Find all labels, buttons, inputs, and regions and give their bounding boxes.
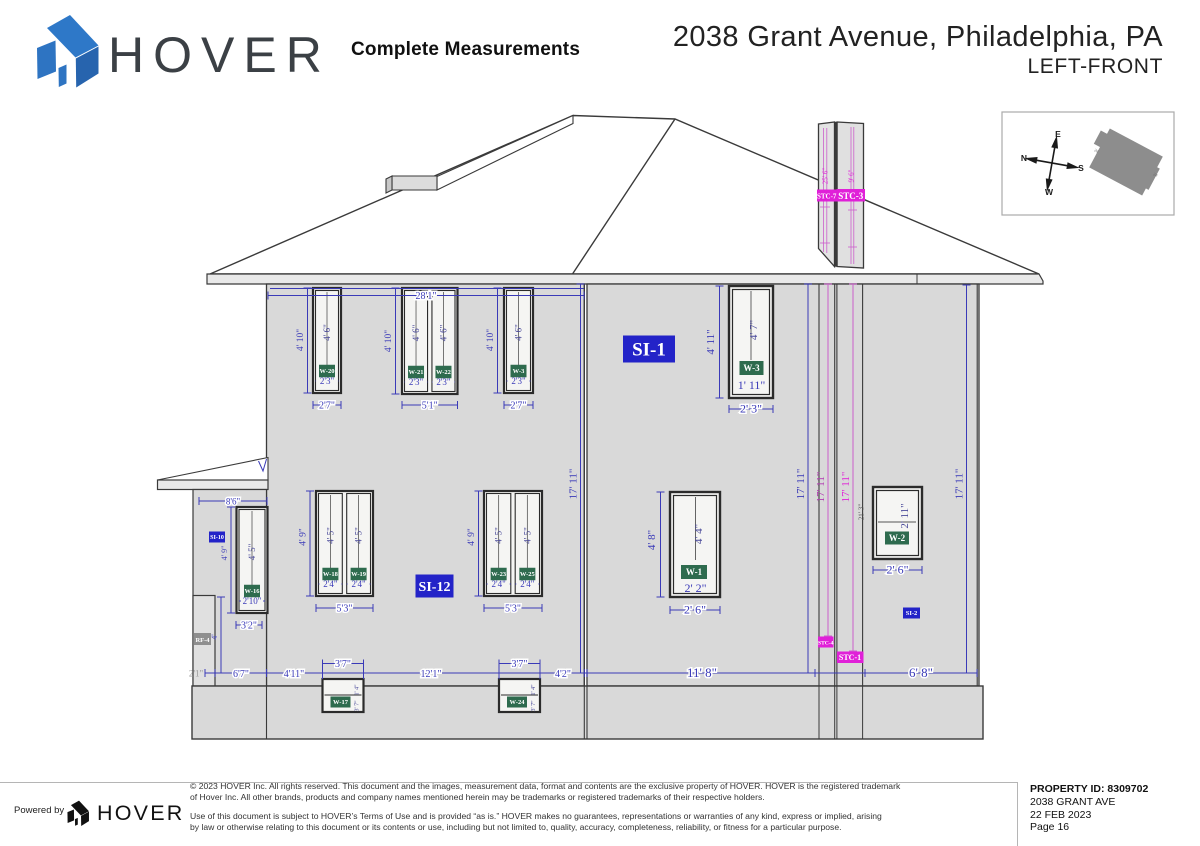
- svg-text:W-23: W-23: [491, 571, 507, 578]
- svg-text:STC-4: STC-4: [818, 641, 834, 647]
- svg-text:3' 7": 3' 7": [355, 700, 361, 712]
- svg-text:W-3: W-3: [743, 363, 760, 373]
- svg-text:4' 5": 4' 5": [354, 527, 364, 544]
- svg-text:4' 5": 4' 5": [522, 527, 532, 544]
- svg-text:STC-1: STC-1: [839, 653, 861, 662]
- svg-text:4' 5": 4' 5": [494, 527, 504, 544]
- svg-text:11' 8": 11' 8": [687, 665, 717, 680]
- svg-text:21' 3": 21' 3": [858, 504, 866, 521]
- svg-text:17' 11": 17' 11": [840, 472, 852, 503]
- svg-text:5'1": 5'1": [422, 401, 438, 412]
- svg-text:4' 4": 4' 4": [693, 524, 705, 544]
- svg-text:W-16: W-16: [245, 588, 261, 595]
- svg-text:4' 10": 4' 10": [384, 330, 394, 352]
- svg-text:2' 2": 2' 2": [684, 581, 706, 595]
- svg-text:W-22: W-22: [436, 369, 451, 376]
- svg-text:28'1": 28'1": [416, 291, 437, 302]
- svg-text:4' 6": 4' 6": [322, 324, 332, 341]
- svg-text:N: N: [1021, 153, 1027, 163]
- svg-text:5'3": 5'3": [337, 604, 353, 615]
- svg-text:W-21: W-21: [409, 369, 424, 376]
- svg-text:W-1: W-1: [686, 567, 703, 577]
- svg-text:3'2": 3'2": [241, 621, 257, 632]
- svg-text:W-24: W-24: [510, 699, 526, 706]
- svg-text:W-17: W-17: [333, 699, 349, 706]
- svg-text:4' 9": 4' 9": [299, 528, 309, 546]
- svg-text:17' 11": 17' 11": [568, 469, 580, 500]
- svg-text:2' 3": 2' 3": [740, 402, 762, 416]
- svg-text:2' 6": 2' 6": [886, 563, 908, 577]
- svg-text:5'3": 5'3": [505, 604, 521, 615]
- svg-text:SI-2: SI-2: [906, 610, 918, 617]
- svg-text:W-19: W-19: [351, 571, 367, 578]
- svg-text:W: W: [1045, 187, 1054, 197]
- svg-text:4' 8": 4' 8": [646, 530, 658, 550]
- svg-text:3' 7": 3' 7": [531, 700, 537, 712]
- svg-text:2'4": 2'4": [520, 579, 535, 589]
- svg-text:4' 7": 4' 7": [748, 320, 760, 340]
- svg-text:W-2: W-2: [889, 533, 906, 543]
- svg-text:2'7": 2'7": [319, 401, 335, 412]
- svg-text:17' 11": 17' 11": [815, 472, 827, 503]
- svg-text:W-18: W-18: [323, 571, 339, 578]
- svg-text:2'1": 2'1": [189, 669, 204, 679]
- svg-text:2'3": 2'3": [409, 377, 424, 387]
- svg-text:W-3: W-3: [513, 368, 525, 375]
- svg-text:4': 4': [210, 634, 219, 640]
- svg-text:1' 4": 1' 4": [355, 684, 361, 696]
- svg-text:4' 6": 4' 6": [438, 324, 448, 341]
- svg-text:6'7": 6'7": [233, 669, 249, 680]
- svg-text:2'10": 2'10": [243, 596, 262, 606]
- svg-text:4' 11": 4' 11": [705, 329, 717, 354]
- svg-text:4'2": 4'2": [555, 669, 571, 680]
- svg-text:8'6": 8'6": [226, 497, 241, 507]
- svg-text:2'3": 2'3": [511, 376, 526, 386]
- svg-text:E: E: [1055, 129, 1061, 139]
- svg-text:SI-12: SI-12: [419, 580, 451, 595]
- svg-text:3'7": 3'7": [335, 659, 351, 670]
- svg-text:2' 11": 2' 11": [899, 503, 911, 528]
- svg-text:6' 8": 6' 8": [909, 665, 933, 680]
- svg-text:4' 10": 4' 10": [486, 329, 496, 351]
- svg-text:2'3": 2'3": [436, 377, 451, 387]
- svg-text:2'4": 2'4": [492, 579, 507, 589]
- svg-text:3'7": 3'7": [512, 659, 528, 670]
- svg-text:4' 5": 4' 5": [247, 543, 257, 560]
- svg-text:4' 9": 4' 9": [220, 546, 229, 561]
- svg-text:17' 11": 17' 11": [954, 469, 966, 500]
- svg-text:W-20: W-20: [320, 368, 335, 375]
- svg-text:W-25: W-25: [520, 571, 536, 578]
- svg-text:2'4": 2'4": [351, 579, 366, 589]
- svg-text:S: S: [1078, 163, 1084, 173]
- svg-text:STC-7: STC-7: [817, 193, 837, 201]
- svg-text:4'11": 4'11": [284, 669, 305, 680]
- svg-text:SI-10: SI-10: [210, 535, 224, 541]
- svg-text:25' 6": 25' 6": [822, 168, 830, 185]
- svg-text:RF-4: RF-4: [195, 637, 210, 644]
- svg-text:4' 6": 4' 6": [411, 324, 421, 341]
- svg-text:2'3": 2'3": [320, 376, 335, 386]
- svg-text:4' 9": 4' 9": [467, 528, 477, 546]
- svg-text:17' 11": 17' 11": [795, 469, 807, 500]
- svg-text:4' 5": 4' 5": [325, 527, 335, 544]
- svg-text:4' 10": 4' 10": [296, 329, 306, 351]
- svg-text:2' 6": 2' 6": [684, 603, 706, 617]
- svg-text:2'4": 2'4": [323, 579, 338, 589]
- svg-text:SI-1: SI-1: [632, 339, 666, 360]
- svg-text:1' 11": 1' 11": [738, 378, 766, 392]
- svg-text:9' 6": 9' 6": [848, 169, 856, 182]
- svg-text:1' 4": 1' 4": [531, 684, 537, 696]
- svg-text:12'1": 12'1": [421, 669, 442, 680]
- svg-text:2'7": 2'7": [511, 401, 527, 412]
- svg-text:4' 6": 4' 6": [514, 324, 524, 341]
- svg-text:STC-3: STC-3: [838, 191, 864, 201]
